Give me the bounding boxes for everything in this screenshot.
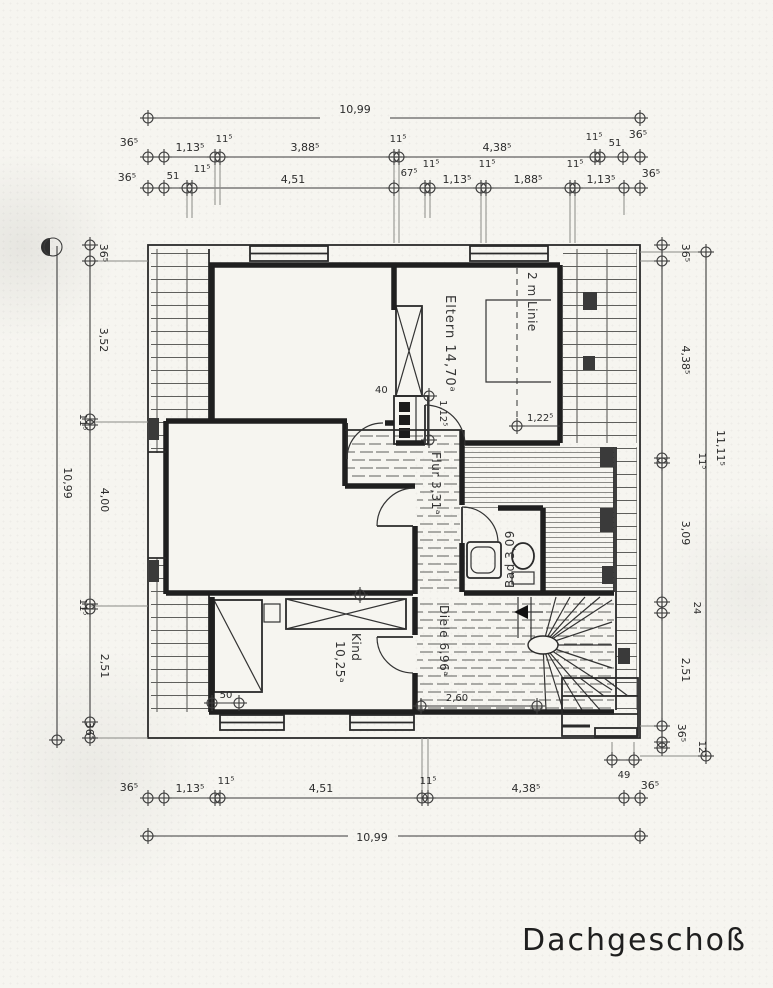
datum-mark [41, 238, 50, 256]
dim-label: 3,09 [679, 521, 692, 546]
dim-label: 1,13⁵ [587, 173, 616, 186]
bathroom-sink [467, 542, 501, 578]
dim-label: 11⁵ [567, 159, 584, 170]
dim-label: 1,88⁵ [514, 173, 543, 186]
dim-label: 12⁵ [696, 741, 707, 758]
dim-label: 36⁵ [629, 128, 647, 141]
dimension-labels-left: 36⁵ 3,52 11⁵ 4,00 11⁵ 2,51 36⁵ 10,99 [61, 244, 111, 740]
dim-label: 11⁵ [218, 776, 235, 787]
dim-label: 11⁵ [420, 776, 437, 787]
dim-label: 51 [609, 138, 622, 149]
dim-label: 4,51 [309, 782, 334, 795]
dim-label: 11⁵ [77, 599, 88, 616]
dim-label: 2,51 [98, 654, 111, 679]
dim-label: 10,99 [356, 831, 388, 844]
dim-label: 11⁵ [479, 159, 496, 170]
dim-label: 11⁵ [390, 134, 407, 145]
dim-label: 1,13⁵ [443, 173, 472, 186]
dim-label: 36⁵ [641, 779, 659, 792]
sheet-title: Dachgeschoß [522, 923, 747, 958]
dimension-labels-bottom: 36⁵ 1,13⁵ 11⁵ 4,51 11⁵ 4,38⁵ 36⁵ 49 10,9… [120, 770, 659, 844]
dim-label: 36⁵ [120, 136, 138, 149]
dim-label-diele: 2,60 [446, 693, 468, 704]
floor-plan-drawing: 10,99 36⁵ 1,13⁵ 11⁵ 3,88⁵ 11⁵ 4,38⁵ 11⁵ … [0, 0, 773, 988]
dim-label: 10,99 [339, 103, 371, 116]
dim-label-2m-offset: 1,22⁵ [527, 413, 553, 424]
dim-label: 2,51 [679, 658, 692, 683]
dimension-labels-top: 10,99 36⁵ 1,13⁵ 11⁵ 3,88⁵ 11⁵ 4,38⁵ 11⁵ … [118, 103, 660, 186]
room-label-bad: Bad 3,09 [503, 530, 517, 588]
dim-label: 3,52 [97, 328, 110, 353]
dim-label: 4,38⁵ [483, 141, 512, 154]
dim-label: 36⁵ [120, 781, 138, 794]
dim-label: 11⁵ [423, 159, 440, 170]
dim-label: 11,11⁵ [714, 430, 727, 466]
dim-label: 36⁵ [83, 722, 96, 740]
label-2m-linie: 2 m Linie [525, 272, 539, 332]
dim-label-door: 1,12⁵ [437, 400, 448, 426]
storage-hatch [464, 447, 614, 590]
dim-label: 3,88⁵ [291, 141, 320, 154]
dim-label: 11⁵ [194, 164, 211, 175]
dim-label: 49 [618, 770, 631, 781]
dim-label: 24 [691, 602, 702, 615]
dim-label: 4,51 [281, 173, 306, 186]
room-label-kind-area: 10,25ᵃ [333, 641, 347, 683]
dim-label: 10,99 [61, 467, 74, 499]
dim-label: 11⁵ [696, 453, 707, 470]
door-bad [462, 507, 498, 543]
dim-label: 36⁵ [675, 724, 688, 742]
dimension-labels-right: 36⁵ 4,38⁵ 11⁵ 3,09 24 2,51 36⁵ 12⁵ 11,11… [675, 244, 727, 758]
dim-label: 11⁵ [216, 134, 233, 145]
room-label-flur: Flur 3,31ᵃ [429, 452, 443, 515]
dim-label: 67⁵ [401, 168, 418, 179]
dim-label: 36⁵ [97, 244, 110, 262]
dim-label: 4,38⁵ [679, 346, 692, 375]
dim-label: 36⁵ [642, 167, 660, 180]
dim-label: 1,13⁵ [176, 782, 205, 795]
dim-label: 11⁵ [77, 414, 88, 431]
dim-label: 4,38⁵ [512, 782, 541, 795]
floor-plan-sheet: 10,99 36⁵ 1,13⁵ 11⁵ 3,88⁵ 11⁵ 4,38⁵ 11⁵ … [0, 0, 773, 988]
room-label-eltern: Eltern 14,70ᵃ [442, 295, 457, 393]
dim-label: 36⁵ [118, 171, 136, 184]
dim-label: 36⁵ [679, 244, 692, 262]
dim-label-stack: 40 [375, 385, 388, 396]
dim-label-bed: 50 [220, 690, 233, 701]
dim-label: 11⁵ [586, 132, 603, 143]
dim-label: 1,13⁵ [176, 141, 205, 154]
room-label-diele: Diele 6,96ᵃ [437, 605, 451, 676]
dim-label: 51 [167, 171, 180, 182]
room-label-kind: Kind [349, 633, 363, 661]
dim-label: 4,00 [98, 488, 111, 513]
